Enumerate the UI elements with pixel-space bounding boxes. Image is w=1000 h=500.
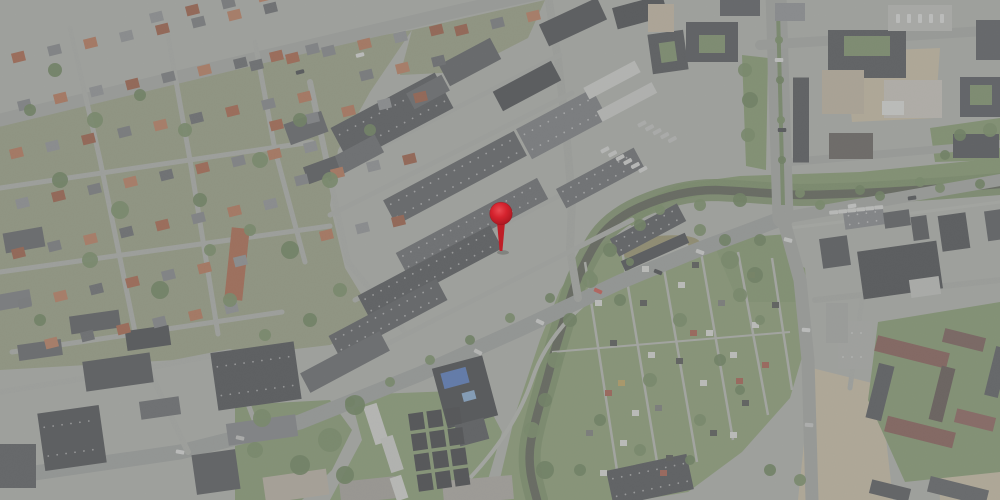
aerial-imagery[interactable] <box>0 0 1000 500</box>
pin-head <box>490 202 513 225</box>
pin-shadow <box>497 250 509 254</box>
map-viewport[interactable] <box>0 0 1000 500</box>
